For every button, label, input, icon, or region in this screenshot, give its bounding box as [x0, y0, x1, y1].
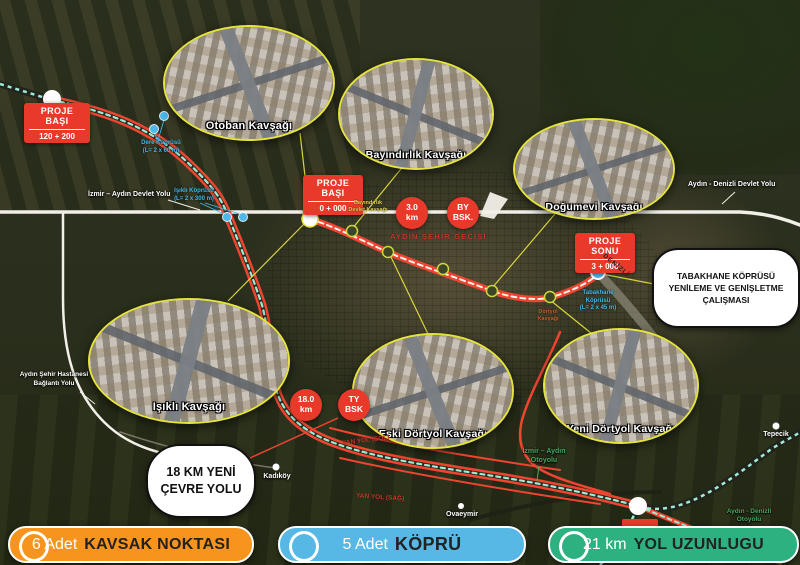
- inset-label: Otoban Kavşağı: [165, 120, 333, 132]
- circle-by-bsk: BY BSK.: [447, 197, 479, 229]
- label-line: Otoyolu: [510, 456, 578, 465]
- inset-label: Işıklı Kavşağı: [90, 401, 288, 413]
- place-ovaeymir: Ovaeymir: [436, 511, 488, 518]
- badge-title: PROJE: [29, 106, 85, 116]
- label-line: İzmir – Aydın: [510, 447, 578, 456]
- label-line: Işıklı Köprüsü: [170, 188, 218, 196]
- label-sehir-gecisi: AYDIN ŞEHİR GEÇİŞİ: [390, 232, 487, 241]
- badge-title: PROJE: [308, 178, 358, 188]
- circle-text: km: [300, 405, 312, 415]
- legend-ring-icon: [19, 531, 49, 562]
- circle-3km: 3.0 km: [396, 197, 428, 229]
- label-line: Bağlantı Yolu: [6, 380, 102, 389]
- legend-label: KÖPRÜ: [395, 534, 462, 555]
- circle-text: BSK.: [453, 213, 473, 223]
- road-label-izmir-aydin-devlet: İzmir – Aydın Devlet Yolu: [88, 191, 170, 198]
- legend-label: KAVSAK NOKTASI: [84, 536, 230, 554]
- label-bayindirlik-junction: Bayındırlık Devlet Kavşağı: [344, 200, 392, 214]
- inset-yeni-dortyol: Yeni Dörtyol Kavşağı: [543, 328, 699, 444]
- circle-ty-bsk: TY BSK: [338, 389, 370, 421]
- inset-label: Doğumevi Kavşağı: [515, 201, 673, 213]
- inset-otoban: Otoban Kavşağı: [163, 25, 335, 141]
- badge-km: 120 + 200: [29, 129, 85, 141]
- circle-text: km: [406, 213, 418, 223]
- label-isikli-koprusu: Işıklı Köprüsü (L= 2 x 300 m): [170, 188, 218, 203]
- badge-title: BAŞI: [29, 116, 85, 126]
- circle-text: BSK: [345, 405, 363, 415]
- road-label-hastane: Aydın Şehir Hastanesi Bağlantı Yolu: [6, 371, 102, 389]
- legend-kopru: 5 Adet KÖPRÜ: [278, 526, 526, 563]
- label-line: Aydın Şehir Hastanesi: [6, 371, 102, 380]
- label-line: (L= 2 x 300 m): [170, 196, 218, 204]
- legend-label: YOL UZUNLUGU: [634, 536, 764, 554]
- road-label-izmir-aydin-otoyolu: İzmir – Aydın Otoyolu: [510, 447, 578, 465]
- tabakhane-callout: TABAKHANE KÖPRÜSÜ YENİLEME VE GENİŞLETME…: [652, 248, 800, 328]
- label-dortyol-junction: Dörtyol Kavşağı: [522, 309, 574, 323]
- project-map: Otoban Kavşağı Bayındırlık Kavşağı Doğum…: [0, 0, 800, 565]
- inset-bayindirlik: Bayındırlık Kavşağı: [338, 58, 494, 170]
- cevre-yolu-callout: 18 KM YENİ ÇEVRE YOLU: [146, 444, 256, 518]
- circle-18km: 18.0 km: [290, 389, 322, 421]
- label-dere-koprusu: Dere Köprüsü (L= 2 x 60 m): [132, 140, 190, 155]
- place-kadikoy: Kadıköy: [252, 473, 302, 480]
- callout-text: TABAKHANE KÖPRÜSÜ YENİLEME VE GENİŞLETME…: [658, 270, 794, 307]
- inset-eski-dortyol: Eski Dörtyol Kavşağı: [352, 333, 514, 449]
- label-line: Kavşağı: [522, 316, 574, 323]
- legend-ring-icon: [289, 531, 319, 562]
- label-line: Tabakhane: [566, 290, 630, 298]
- label-line: Otoyolu: [714, 516, 784, 524]
- label-line: Dere Köprüsü: [132, 140, 190, 148]
- road-label-aydin-denizli-otoyolu: Aydın - Denizli Otoyolu: [714, 508, 784, 525]
- legend-yol: 21 km YOL UZUNLUGU: [548, 526, 799, 563]
- label-line: (L= 2 x 45 m): [566, 305, 630, 313]
- label-line: Bayındırlık: [344, 200, 392, 207]
- place-tepecik: Tepecik: [752, 431, 800, 438]
- inset-dogumevi: Doğumevi Kavşağı: [513, 118, 675, 220]
- legend-count: 21 km: [583, 536, 627, 554]
- label-line: Dörtyol: [522, 309, 574, 316]
- legend-ring-icon: [559, 531, 589, 562]
- label-line: Devlet Kavşağı: [344, 207, 392, 214]
- label-line: (L= 2 x 60 m): [132, 148, 190, 156]
- inset-label: Bayındırlık Kavşağı: [340, 149, 492, 161]
- inset-label: Yeni Dörtyol Kavşağı: [545, 423, 697, 435]
- badge-title: PROJE: [580, 236, 630, 246]
- road-label-aydin-denizli-devlet: Aydın - Denizli Devlet Yolu: [688, 181, 775, 188]
- label-tabakhane-koprusu: Tabakhane Köprüsü (L= 2 x 45 m): [566, 290, 630, 313]
- legend-count: 5 Adet: [343, 536, 388, 554]
- badge-title: BAŞI: [308, 188, 358, 198]
- callout-text: 18 KM YENİ ÇEVRE YOLU: [160, 464, 242, 498]
- label-line: Köprüsü: [566, 298, 630, 306]
- inset-isikli: Işıklı Kavşağı: [88, 298, 290, 424]
- proje-basi-120-badge: PROJE BAŞI 120 + 200: [24, 103, 90, 143]
- legend-kavsak: 6 Adet KAVSAK NOKTASI: [8, 526, 254, 563]
- white-flag-shape: [480, 192, 508, 219]
- route-end-node: [629, 497, 647, 515]
